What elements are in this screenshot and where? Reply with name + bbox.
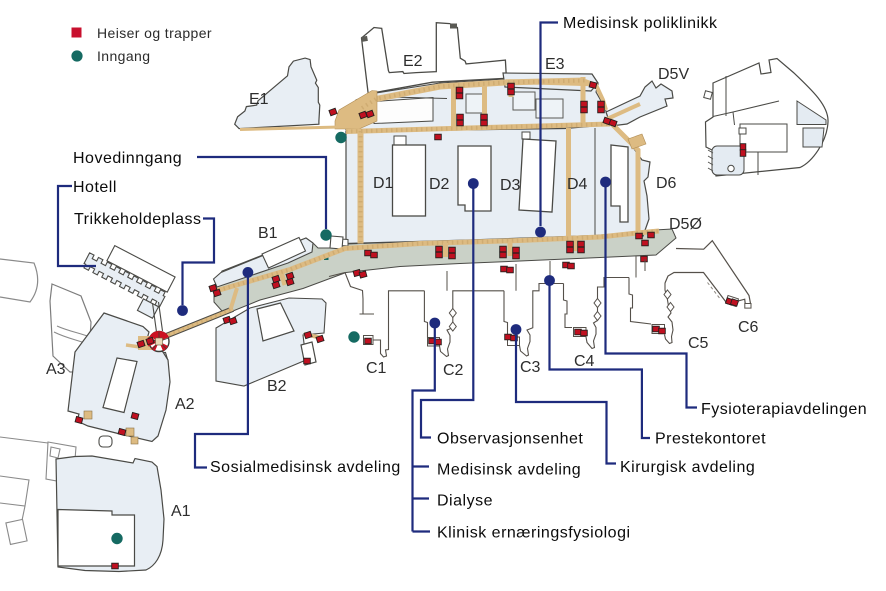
svg-text:B1: B1 (258, 225, 278, 242)
svg-text:D1: D1 (373, 175, 394, 192)
svg-text:Hotell: Hotell (73, 179, 117, 196)
svg-text:A1: A1 (171, 503, 191, 520)
svg-text:C5: C5 (688, 335, 709, 352)
svg-text:Kirurgisk avdeling: Kirurgisk avdeling (620, 459, 755, 476)
svg-text:C1: C1 (366, 360, 387, 377)
svg-text:C3: C3 (520, 359, 541, 376)
svg-text:B2: B2 (267, 378, 287, 395)
svg-text:Prestekontoret: Prestekontoret (655, 431, 766, 448)
svg-text:D5V: D5V (658, 66, 689, 83)
svg-text:Heiser og trapper: Heiser og trapper (97, 25, 212, 41)
svg-text:C4: C4 (574, 353, 595, 370)
svg-text:Fysioterapiavdelingen: Fysioterapiavdelingen (701, 401, 867, 418)
svg-text:D2: D2 (429, 176, 450, 193)
svg-text:D5Ø: D5Ø (669, 216, 702, 233)
svg-text:Hovedinngang: Hovedinngang (73, 150, 182, 167)
svg-text:D3: D3 (500, 177, 521, 194)
svg-text:A3: A3 (46, 361, 66, 378)
svg-text:Sosialmedisinsk avdeling: Sosialmedisinsk avdeling (210, 459, 401, 476)
svg-text:Trikkeholdeplass: Trikkeholdeplass (74, 211, 201, 228)
svg-text:E2: E2 (403, 53, 423, 70)
svg-text:Observasjonsenhet: Observasjonsenhet (437, 431, 583, 448)
svg-text:Klinisk ernæringsfysiologi: Klinisk ernæringsfysiologi (437, 525, 631, 542)
svg-text:E3: E3 (545, 56, 565, 73)
svg-text:Dialyse: Dialyse (437, 493, 493, 510)
svg-text:Inngang: Inngang (97, 48, 150, 64)
svg-text:C2: C2 (443, 362, 464, 379)
svg-text:E1: E1 (249, 91, 269, 108)
svg-text:C6: C6 (738, 319, 759, 336)
svg-text:D6: D6 (656, 175, 677, 192)
svg-text:Medisinsk avdeling: Medisinsk avdeling (437, 462, 581, 479)
svg-text:D4: D4 (567, 176, 588, 193)
svg-text:A2: A2 (175, 396, 195, 413)
svg-text:Medisinsk poliklinikk: Medisinsk poliklinikk (563, 15, 718, 32)
